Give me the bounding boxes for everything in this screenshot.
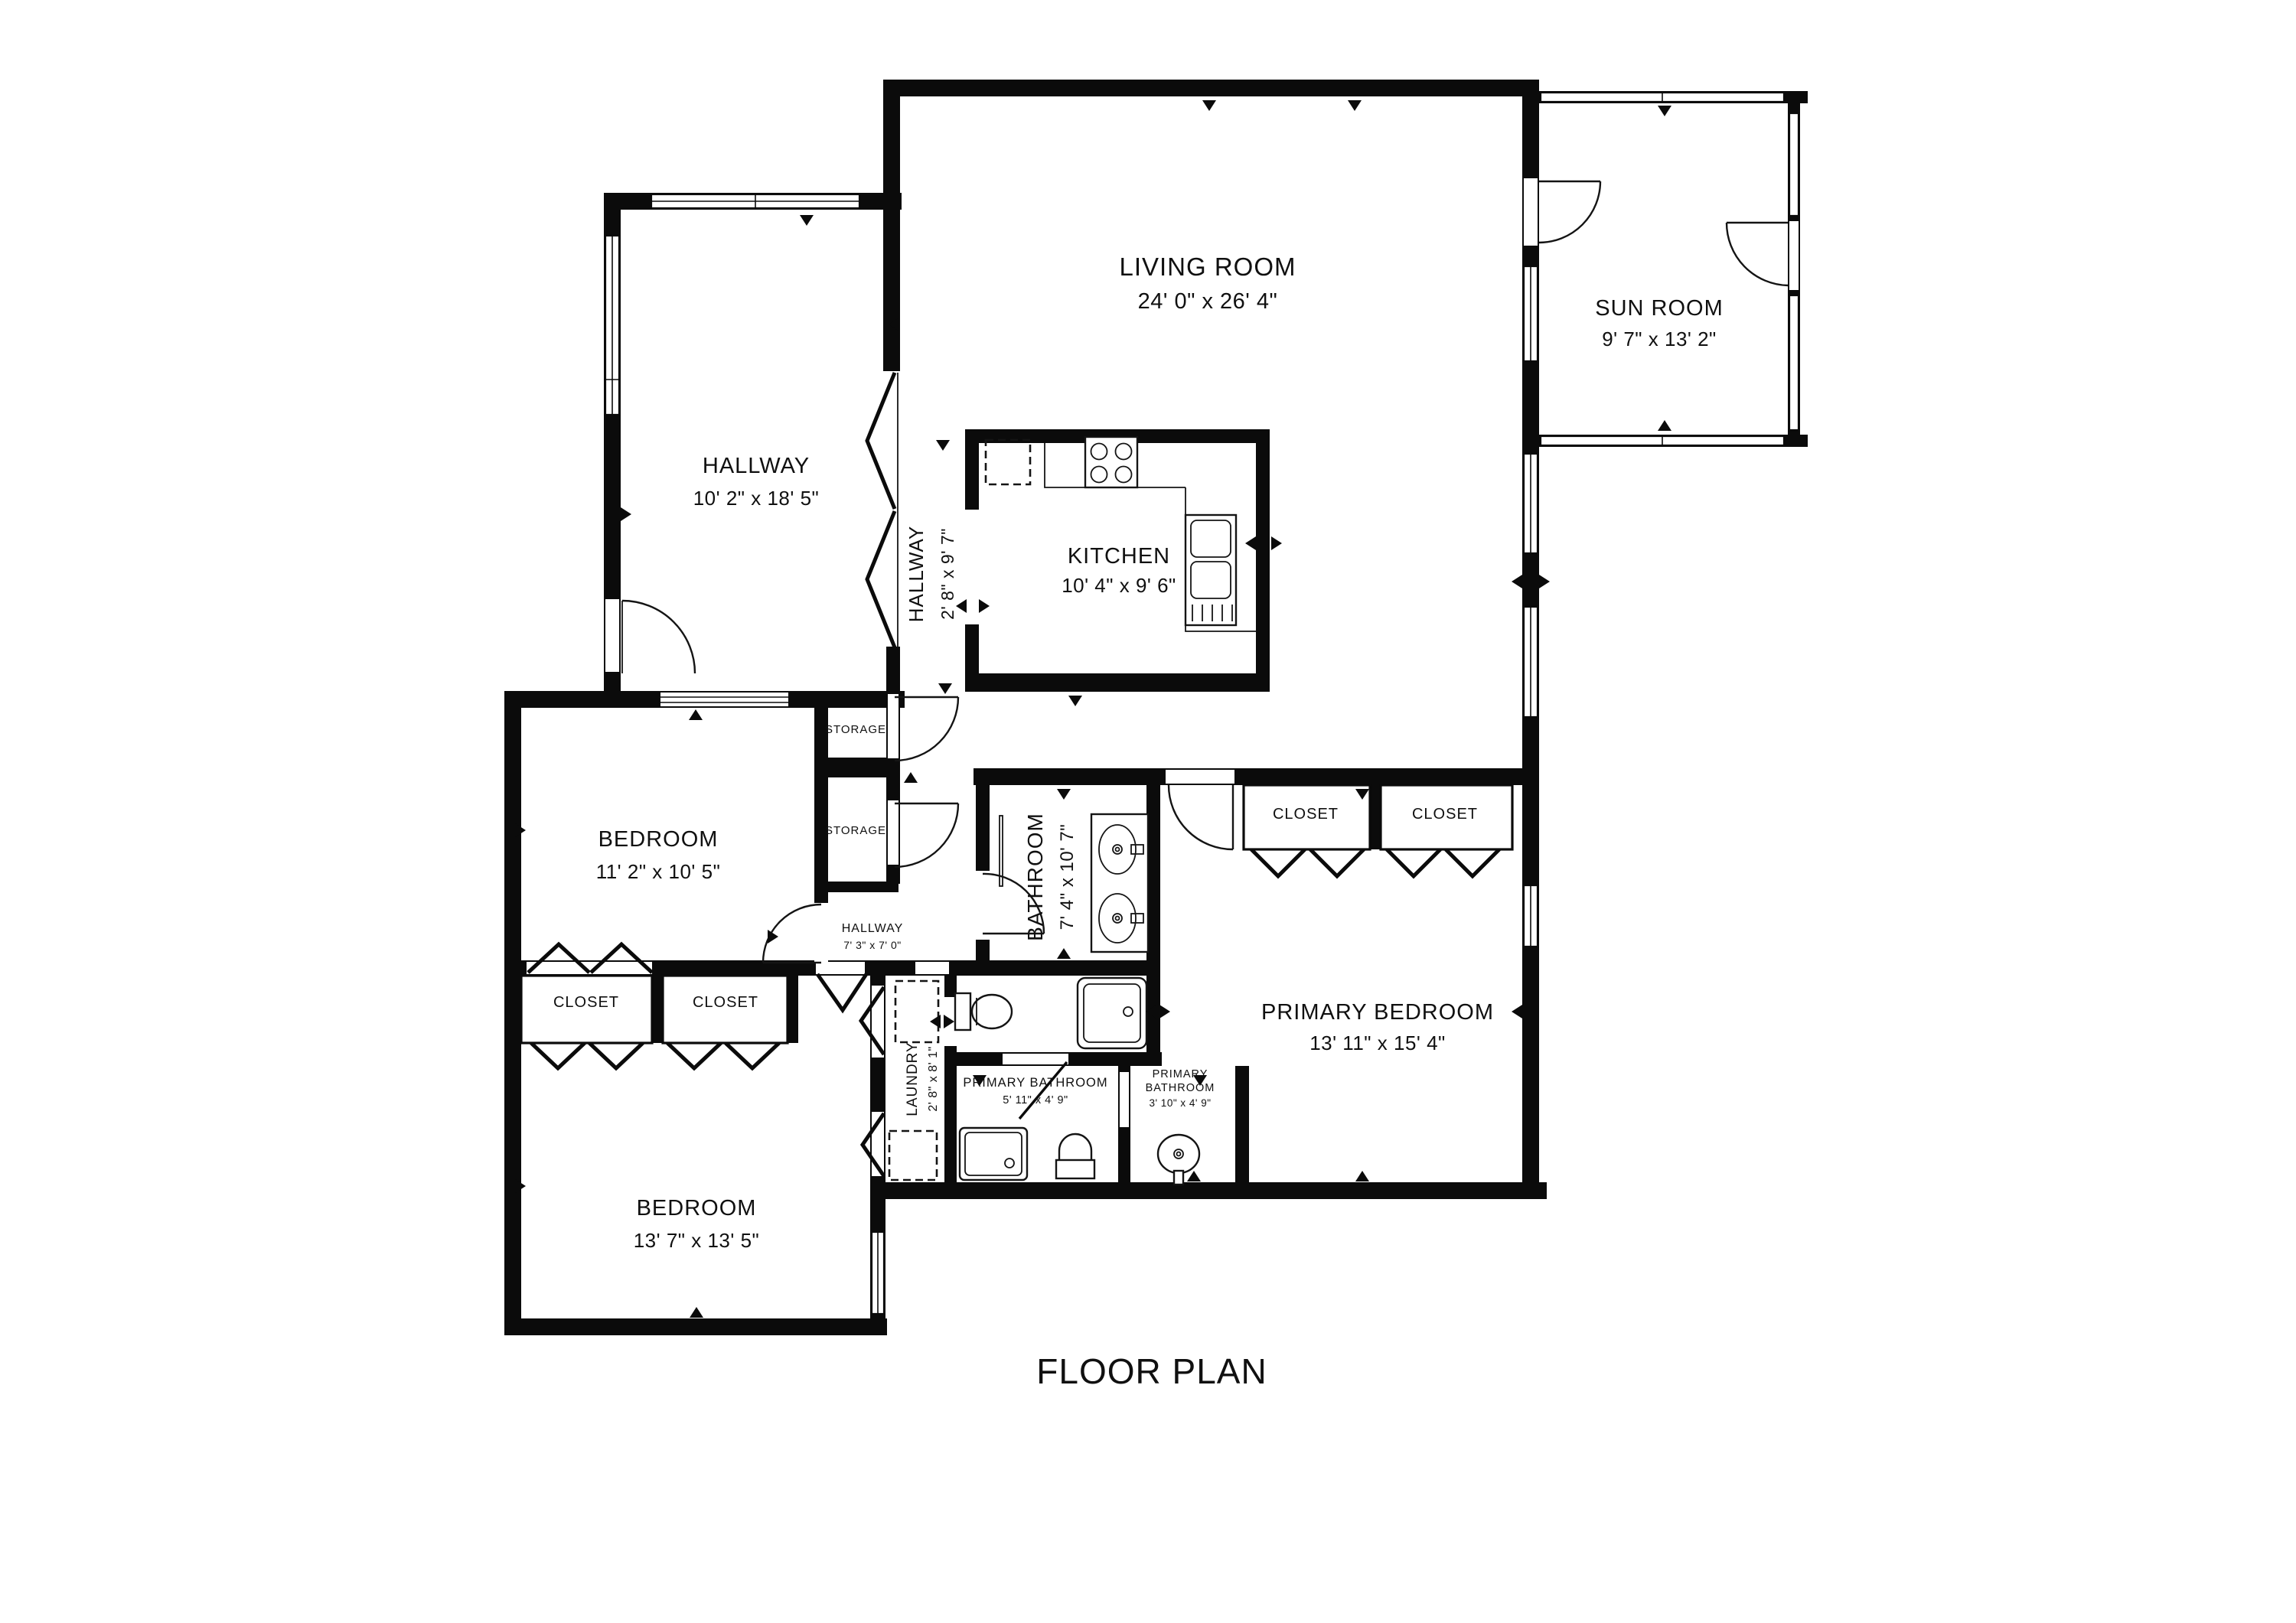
room-label-primary-bathroom-right-2: BATHROOM	[1146, 1082, 1215, 1094]
room-label-closet-left: CLOSET	[553, 994, 619, 1011]
room-label-laundry: LAUNDRY	[905, 1041, 921, 1116]
room-dims-bedroom-bottom: 13' 7" x 13' 5"	[634, 1229, 760, 1252]
room-dims-primary-bedroom: 13' 11" x 15' 4"	[1309, 1031, 1446, 1054]
primary-bathroom-fixtures	[960, 1128, 1199, 1185]
room-dims-laundry: 2' 8" x 8' 1"	[927, 1046, 940, 1111]
room-dims-hallway-mid: 2' 8" x 9' 7"	[938, 528, 957, 620]
plan-title: FLOOR PLAN	[1036, 1351, 1267, 1391]
room-dims-hallway-upper: 10' 2" x 18' 5"	[693, 487, 820, 510]
room-dims-primary-bathroom-right: 3' 10" x 4' 9"	[1149, 1097, 1211, 1109]
dimension-arrows	[515, 100, 1671, 1318]
room-dims-bedroom-left: 11' 2" x 10' 5"	[596, 860, 721, 883]
room-label-kitchen: KITCHEN	[1068, 544, 1170, 569]
room-label-bedroom-bottom: BEDROOM	[637, 1196, 757, 1221]
room-dims-living: 24' 0" x 26' 4"	[1138, 289, 1278, 314]
room-label-primary-closet-right: CLOSET	[1412, 806, 1478, 823]
primary-shower-icon	[960, 1128, 1027, 1180]
room-label-hallway-small: HALLWAY	[842, 922, 904, 935]
room-dims-bathroom: 7' 4" x 10' 7"	[1057, 824, 1078, 930]
stove-icon	[1085, 437, 1137, 487]
shower-icon	[1078, 978, 1146, 1048]
room-label-living: LIVING ROOM	[1119, 253, 1296, 281]
room-label-storage-top: STORAGE	[825, 723, 886, 736]
room-label-primary-bathroom-left: PRIMARY BATHROOM	[963, 1076, 1107, 1090]
toilet-icon	[955, 993, 1012, 1030]
room-label-hallway-mid: HALLWAY	[905, 526, 928, 622]
room-dims-primary-bathroom-left: 5' 11" x 4' 9"	[1003, 1094, 1068, 1106]
kitchen-fixtures	[986, 437, 1256, 631]
room-label-storage-bottom: STORAGE	[825, 824, 886, 837]
washer-icon	[895, 981, 938, 1042]
floor-plan: LIVING ROOM 24' 0" x 26' 4" SUN ROOM 9' …	[475, 46, 1852, 1423]
kitchen-sink-icon	[1186, 515, 1236, 625]
double-vanity-icon	[1091, 814, 1148, 952]
room-label-primary-bedroom: PRIMARY BEDROOM	[1261, 1000, 1494, 1025]
room-label-closet-right: CLOSET	[693, 994, 758, 1011]
room-label-primary-closet-left: CLOSET	[1273, 806, 1339, 823]
room-label-primary-bathroom-right-1: PRIMARY	[1153, 1068, 1208, 1080]
floor-plan-page: { "title": "FLOOR PLAN", "colors": { "wa…	[0, 0, 2296, 1623]
room-dims-sunroom: 9' 7" x 13' 2"	[1602, 328, 1717, 350]
room-dims-kitchen: 10' 4" x 9' 6"	[1062, 574, 1176, 597]
room-dims-hallway-small: 7' 3" x 7' 0"	[843, 939, 902, 951]
room-label-sunroom: SUN ROOM	[1595, 296, 1724, 321]
dishwasher-icon	[986, 440, 1030, 484]
room-label-bathroom: BATHROOM	[1023, 813, 1047, 941]
dryer-icon	[889, 1131, 937, 1180]
room-label-hallway-upper: HALLWAY	[703, 454, 810, 478]
primary-toilet-icon	[1056, 1134, 1094, 1178]
floor-plan-svg: LIVING ROOM 24' 0" x 26' 4" SUN ROOM 9' …	[475, 46, 1852, 1423]
room-label-bedroom-left: BEDROOM	[598, 827, 719, 852]
